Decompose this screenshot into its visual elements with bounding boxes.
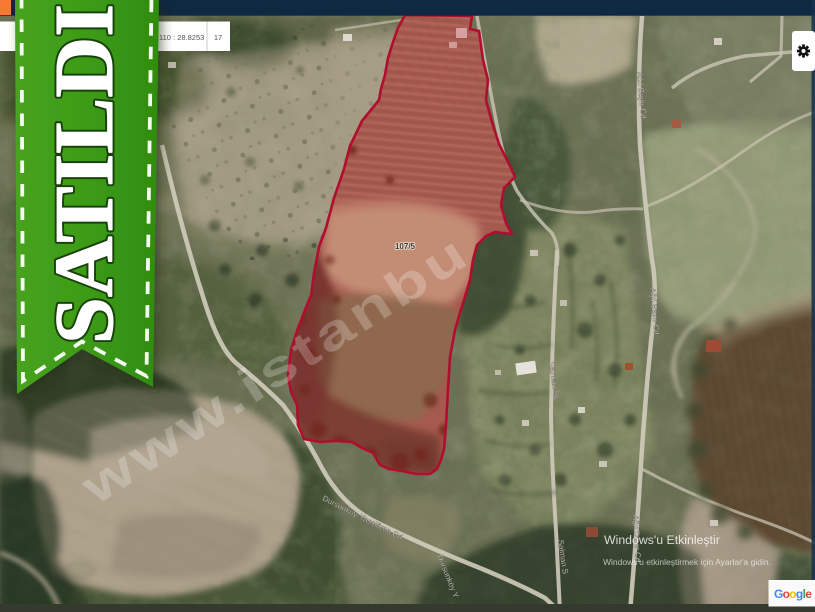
svg-text:Google: Google	[774, 587, 812, 601]
svg-text:17: 17	[214, 33, 222, 42]
svg-text:Windows'u Etkinleştir: Windows'u Etkinleştir	[604, 533, 720, 547]
svg-text:Windows'u etkinleştirmek için: Windows'u etkinleştirmek için Ayarlar'a …	[603, 557, 771, 567]
svg-text:SATILDI: SATILDI	[38, 4, 131, 344]
svg-text:110 : 28.8253: 110 : 28.8253	[159, 33, 204, 42]
